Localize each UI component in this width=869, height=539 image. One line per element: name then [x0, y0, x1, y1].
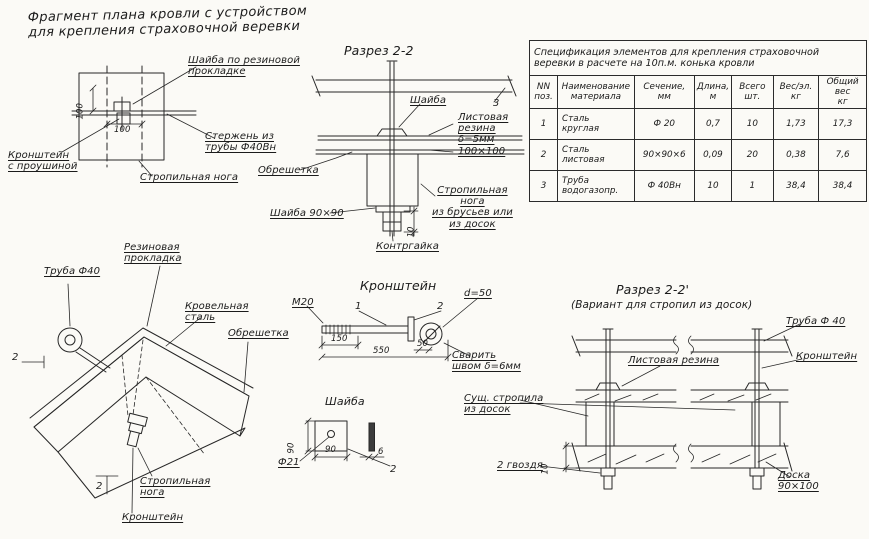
spec-cell: 17,3 — [819, 109, 867, 140]
section22-label-washer-90x90: Шайба 90×90 — [270, 208, 344, 219]
washer-dim-90-vertical: 90 — [287, 442, 297, 453]
spec-cell: 38,4 — [819, 171, 867, 202]
spec-cell: 0,09 — [694, 140, 731, 171]
section22v-subtitle: (Вариант для стропил из досок) — [571, 300, 752, 312]
section22v-label-rafter: Сущ. стропила из досок — [464, 393, 543, 415]
spec-cell: 2 — [530, 140, 558, 171]
spec-cell: 38,4 — [773, 171, 819, 202]
spec-cell: Труба водогазопр. — [557, 171, 634, 202]
spec-cell: Ф 40Вн — [634, 171, 694, 202]
section22-label-washer: Шайба — [410, 95, 446, 106]
spec-row-3: 3 Труба водогазопр. Ф 40Вн 10 1 38,4 38,… — [530, 171, 867, 202]
section22-label-sheathing: Обрешетка — [258, 165, 319, 176]
bracket-dim-550: 550 — [373, 347, 390, 357]
section22v-dim-10: 10 — [541, 463, 551, 474]
ridge-label-rafter: Стропильная нога — [140, 476, 210, 498]
spec-row-2: 2 Сталь листовая 90×90×6 0,09 20 0,38 7,… — [530, 140, 867, 171]
ridge-section-mark-2b: 2 — [96, 481, 102, 492]
section22v-label-board: Доска 90×100 — [778, 470, 819, 492]
bracket-part-1: 1 — [355, 301, 361, 312]
spec-col-qty: Всего шт. — [732, 76, 773, 109]
spec-cell: 20 — [732, 140, 773, 171]
bracket-title: Кронштейн — [360, 279, 436, 293]
ridge-label-pipe: Труба Ф40 — [44, 266, 100, 277]
section22v-label-rubber: Листовая резина — [628, 355, 719, 366]
spec-table: Спецификация элементов для крепления стр… — [529, 40, 867, 202]
spec-col-unit-weight: Вес/эл. кг — [773, 76, 819, 109]
spec-col-section: Сечение, мм — [634, 76, 694, 109]
spec-col-total-weight: Общий вес кг — [819, 76, 867, 109]
washer-label-hole-f21: Ф21 — [278, 457, 300, 468]
section22-title: Разрез 2-2 — [344, 44, 414, 58]
bracket-dim-50: 50 — [417, 340, 428, 350]
spec-col-length: Длина, м — [694, 76, 731, 109]
washer-part-2: 2 — [390, 464, 396, 475]
washer-dim-thickness-6: 6 — [378, 448, 384, 458]
bracket-dim-150: 150 — [331, 335, 348, 345]
section22-part-number-3: 3 — [493, 98, 499, 109]
section-2-2-variant-drawing — [520, 324, 802, 489]
section22v-label-nails: 2 гвоздя — [497, 460, 543, 471]
spec-cell: 1,73 — [773, 109, 819, 140]
bracket-label-m20: М20 — [292, 297, 314, 308]
plan-label-bracket: Кронштейн с проушиной — [8, 150, 78, 172]
washer-dim-90-horizontal: 90 — [325, 446, 336, 456]
spec-cell: 1 — [530, 109, 558, 140]
washer-title: Шайба — [325, 396, 365, 408]
spec-row-1: 1 Сталь круглая Ф 20 0,7 10 1,73 17,3 — [530, 109, 867, 140]
section22v-label-pipe: Труба Ф 40 — [786, 316, 845, 327]
spec-cell: 10 — [694, 171, 731, 202]
section22-dim-10: 10 — [407, 226, 417, 237]
spec-cell: Ф 20 — [634, 109, 694, 140]
spec-cell: 7,6 — [819, 140, 867, 171]
bracket-part-2: 2 — [437, 301, 443, 312]
drawing-sheet: Фрагмент плана кровли с устройством для … — [0, 0, 869, 539]
section22-label-rafter: Стропильная нога из брусьев или из досок — [432, 185, 513, 230]
ridge-section-mark-2a: 2 — [12, 352, 18, 363]
plan-label-rod: Стержень из трубы Ф40Вн — [205, 131, 276, 153]
bracket-label-d50: d=50 — [464, 288, 492, 299]
ridge-label-sheathing: Обрешетка — [228, 328, 289, 339]
ridge-label-roof-steel: Кровельная сталь — [185, 301, 249, 323]
plan-dim-vertical: 100 — [76, 103, 86, 120]
spec-cell: 1 — [732, 171, 773, 202]
spec-cell: 90×90×6 — [634, 140, 694, 171]
spec-cell: Сталь круглая — [557, 109, 634, 140]
spec-cell: 0,38 — [773, 140, 819, 171]
bracket-label-weld: Сварить швом δ=6мм — [452, 350, 521, 372]
plan-label-washer: Шайба по резиновой прокладке — [188, 55, 300, 77]
section22-label-locknut: Контргайка — [376, 241, 439, 252]
spec-cell: Сталь листовая — [557, 140, 634, 171]
spec-table-title: Спецификация элементов для крепления стр… — [530, 41, 867, 76]
section22-label-rubber: Листовая резина δ=5мм 100×100 — [458, 112, 508, 157]
spec-cell: 0,7 — [694, 109, 731, 140]
spec-cell: 3 — [530, 171, 558, 202]
spec-cell: 10 — [732, 109, 773, 140]
washer-detail-drawing — [300, 418, 390, 466]
plan-label-rafter: Стропильная нога — [140, 172, 238, 183]
spec-col-nn: NN поз. — [530, 76, 558, 109]
ridge-label-bracket: Кронштейн — [122, 512, 183, 523]
plan-dim-horizontal: 100 — [114, 126, 131, 136]
ridge-label-rubber-pad: Резиновая прокладка — [124, 242, 182, 264]
plan-view-drawing — [62, 66, 214, 176]
section22v-label-bracket: Кронштейн — [796, 351, 857, 362]
spec-col-material: Наименование материала — [557, 76, 634, 109]
section22v-title: Разрез 2-2' — [616, 283, 689, 297]
